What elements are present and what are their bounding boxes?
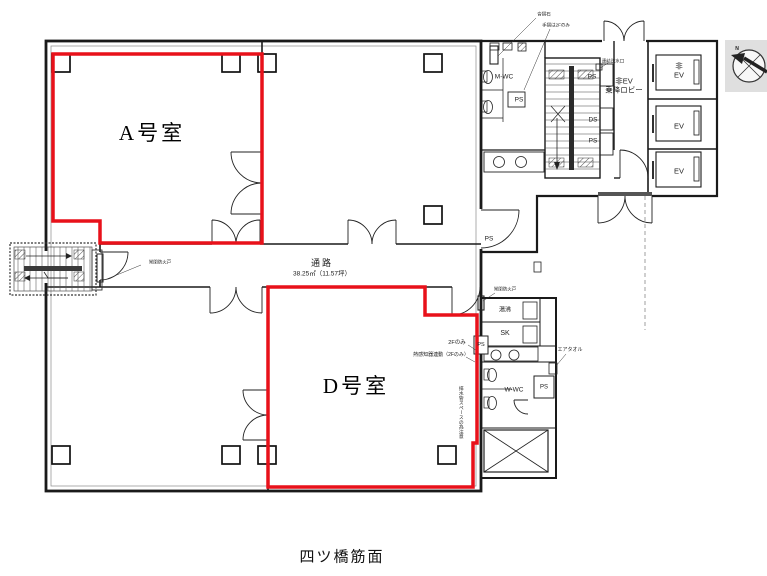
compass (725, 40, 767, 92)
room-d-label: D号室 (323, 374, 389, 398)
ps-label-corridor-east: PS (485, 235, 494, 242)
mens-wc-label: M-WC (495, 73, 513, 80)
ps-label-wwc: PS (540, 385, 548, 392)
ps-label-core-left: PS (515, 96, 524, 103)
womens-wc-label: W-WC (504, 386, 523, 393)
room-a-label: A号室 (119, 121, 185, 145)
second-floor-only-label: 2Fのみ (448, 340, 465, 346)
corridor-label: 通路 (311, 258, 333, 268)
heat-detector-note-label: 熱感知器連動（2Fのみ） (413, 353, 469, 359)
corridor-area-label: 38.25㎡（11.57坪） (293, 270, 351, 277)
fire-door-label-left: 常閉防火戸 (149, 259, 172, 264)
ps-label-core-right-2: PS (589, 137, 598, 144)
fire-door-label-right: 常閉防火戸 (494, 286, 517, 291)
emergency-ev-car-label: 非 EV (674, 62, 684, 79)
ps-label-d-entry: PS (477, 342, 484, 348)
ds-label: DS (588, 116, 597, 123)
hot-water-label: 湯沸 (499, 308, 511, 315)
ps-label-core-right-1: PS (588, 73, 597, 80)
ev-car-2-label: EV (674, 123, 684, 132)
street-caption: 四ツ橋筋面 (299, 548, 384, 565)
columns (52, 54, 456, 464)
floor-plan-drawing (0, 0, 767, 576)
compass-north-label: N (735, 47, 739, 53)
outer-walls (46, 41, 717, 491)
vertical-note-label: 排水管スペースの為注意 (457, 386, 462, 439)
floor-plan-page: A号室 D号室 通路 38.25㎡（11.57坪） 四ツ橋筋面 M-WC PS … (0, 0, 767, 576)
ev-car-3-label: EV (674, 168, 684, 177)
unit-a-outline (53, 54, 262, 243)
standpipe-label: 連結送水口 (602, 58, 625, 63)
ev-lobby-label: 非EV 乗降ロビー (605, 77, 643, 94)
unit-outlines (53, 54, 477, 487)
air-towel-label: エアタオル (557, 348, 582, 354)
handrail-note-label: 手摺は2Fのみ (542, 22, 570, 27)
threshold-stone-label: 沓摺石 (537, 11, 551, 16)
interior-walls (46, 41, 717, 491)
slop-sink-label: SK (500, 330, 509, 338)
